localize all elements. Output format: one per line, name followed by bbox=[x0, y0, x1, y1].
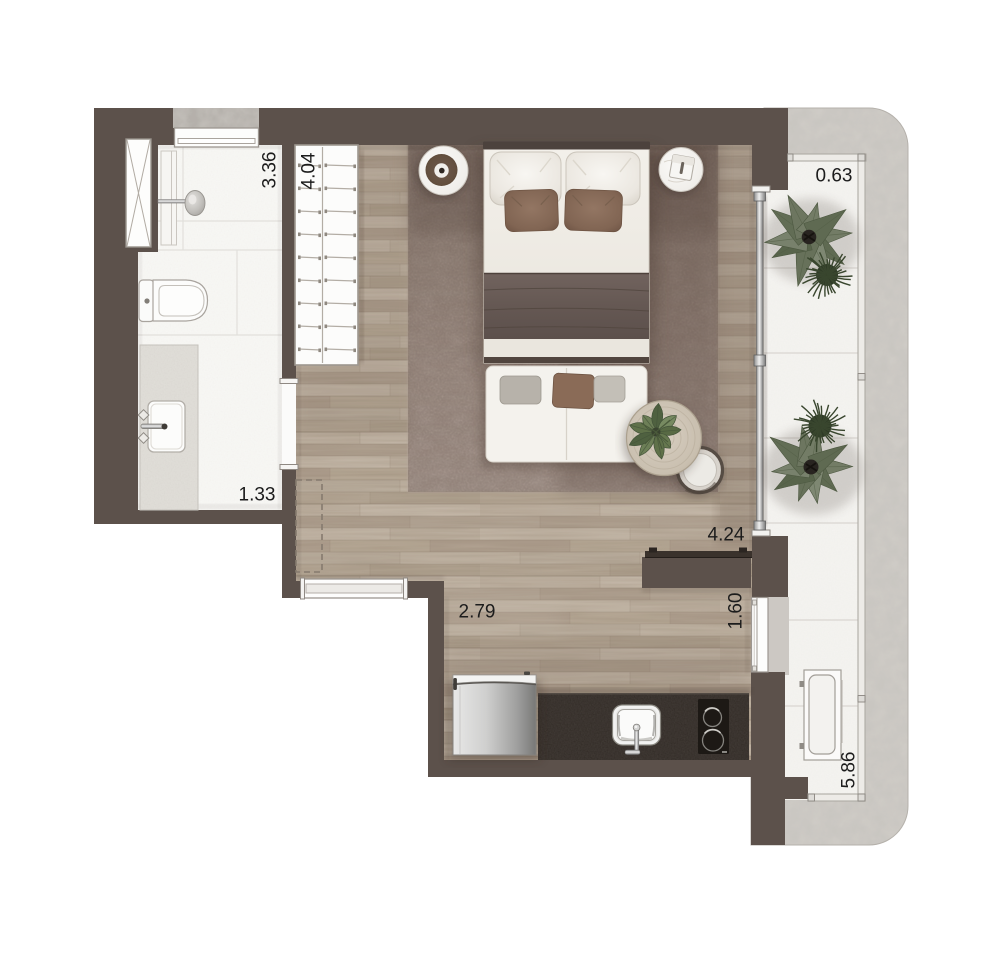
svg-text:1.60: 1.60 bbox=[726, 593, 747, 630]
svg-text:3.36: 3.36 bbox=[260, 152, 281, 189]
svg-text:4.24: 4.24 bbox=[708, 525, 745, 546]
svg-text:0.63: 0.63 bbox=[816, 166, 853, 187]
svg-text:4.04: 4.04 bbox=[299, 152, 320, 189]
svg-text:1.33: 1.33 bbox=[239, 485, 276, 506]
svg-text:2.79: 2.79 bbox=[459, 602, 496, 623]
svg-text:5.86: 5.86 bbox=[839, 752, 860, 789]
